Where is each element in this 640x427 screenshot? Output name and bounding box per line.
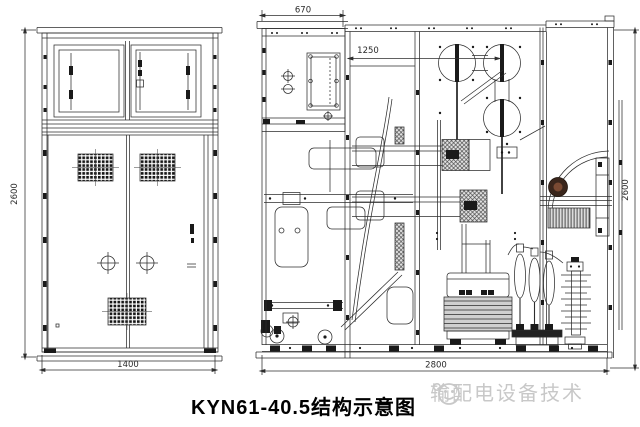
dim-label-side-height: 2600 — [621, 179, 631, 201]
watermark: 输配电设备技术 — [430, 377, 584, 406]
front-view — [37, 28, 222, 362]
dimensions: 2600 1400 670 1250 2600 2800 — [10, 6, 639, 376]
current-transformer — [444, 224, 512, 345]
side-view — [256, 16, 622, 358]
handcart — [261, 132, 413, 346]
surge-arrester — [561, 257, 591, 349]
dim-front-height — [21, 30, 36, 357]
cable-terminations — [508, 244, 563, 345]
dim-label-side-top: 670 — [295, 6, 311, 16]
contact-arms — [352, 127, 516, 270]
front-roof-cap — [37, 28, 222, 34]
side-base — [256, 345, 612, 359]
lv-compartment — [257, 22, 348, 132]
smiley-face-logo — [430, 377, 464, 411]
switchgear-drawing: 2600 1400 670 1250 2600 2800 — [0, 0, 640, 427]
front-instrument-windows — [54, 41, 201, 120]
drawing-title: KYN61-40.5结构示意图 — [191, 391, 416, 420]
door-handle-left — [97, 252, 119, 274]
front-vent-grille-bottom — [102, 293, 152, 330]
drawing-sheet: 2600 1400 670 1250 2600 2800 KYN61-40.5结… — [0, 0, 640, 427]
side-roof — [345, 16, 614, 32]
busbar-bushings — [439, 44, 546, 194]
rear-door-mechanism — [540, 151, 612, 236]
dim-label-front-width: 1400 — [117, 360, 139, 370]
dim-label-side-inner: 1250 — [357, 46, 379, 56]
dim-label-side-depth: 2800 — [425, 361, 447, 371]
front-window-hinges — [44, 55, 217, 112]
roof-bolts — [355, 23, 598, 29]
door-handle-right — [136, 252, 158, 274]
dim-label-front-height: 2600 — [10, 183, 20, 205]
front-vent-grille-right — [134, 149, 181, 186]
front-vent-grille-left — [72, 149, 119, 186]
